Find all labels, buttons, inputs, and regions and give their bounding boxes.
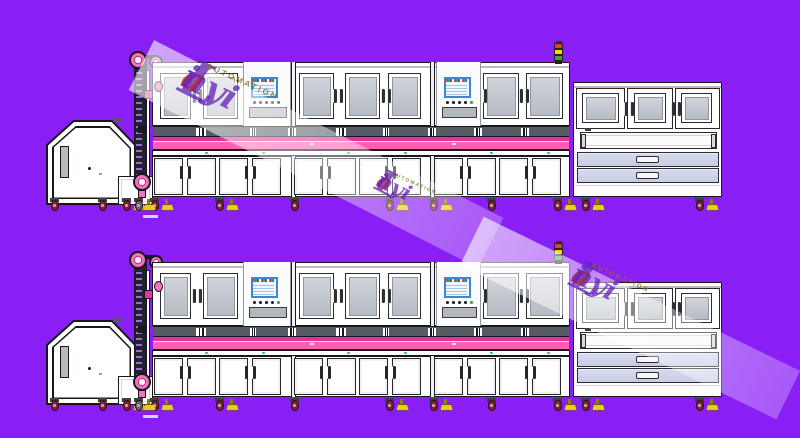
watermark-layer: LianyiAUTOMATIONLianyiAUTOMATIONLianyiAU… — [0, 0, 800, 438]
watermark-stamp: LianyiAUTOMATION — [365, 168, 484, 256]
watermark-subtitle-text: AUTOMATION — [590, 262, 650, 294]
watermark-stamp: LianyiAUTOMATION — [162, 57, 353, 199]
watermark-band — [129, 40, 504, 268]
watermark-subtitle-text: AUTOMATION — [391, 171, 438, 196]
watermark-subtitle-text: AUTOMATION — [205, 61, 280, 101]
automation-line-render: LianyiAUTOMATIONLianyiAUTOMATIONLianyiAU… — [0, 0, 800, 438]
watermark-stamp: LianyiAUTOMATION — [556, 258, 709, 372]
watermark-band — [460, 217, 800, 420]
